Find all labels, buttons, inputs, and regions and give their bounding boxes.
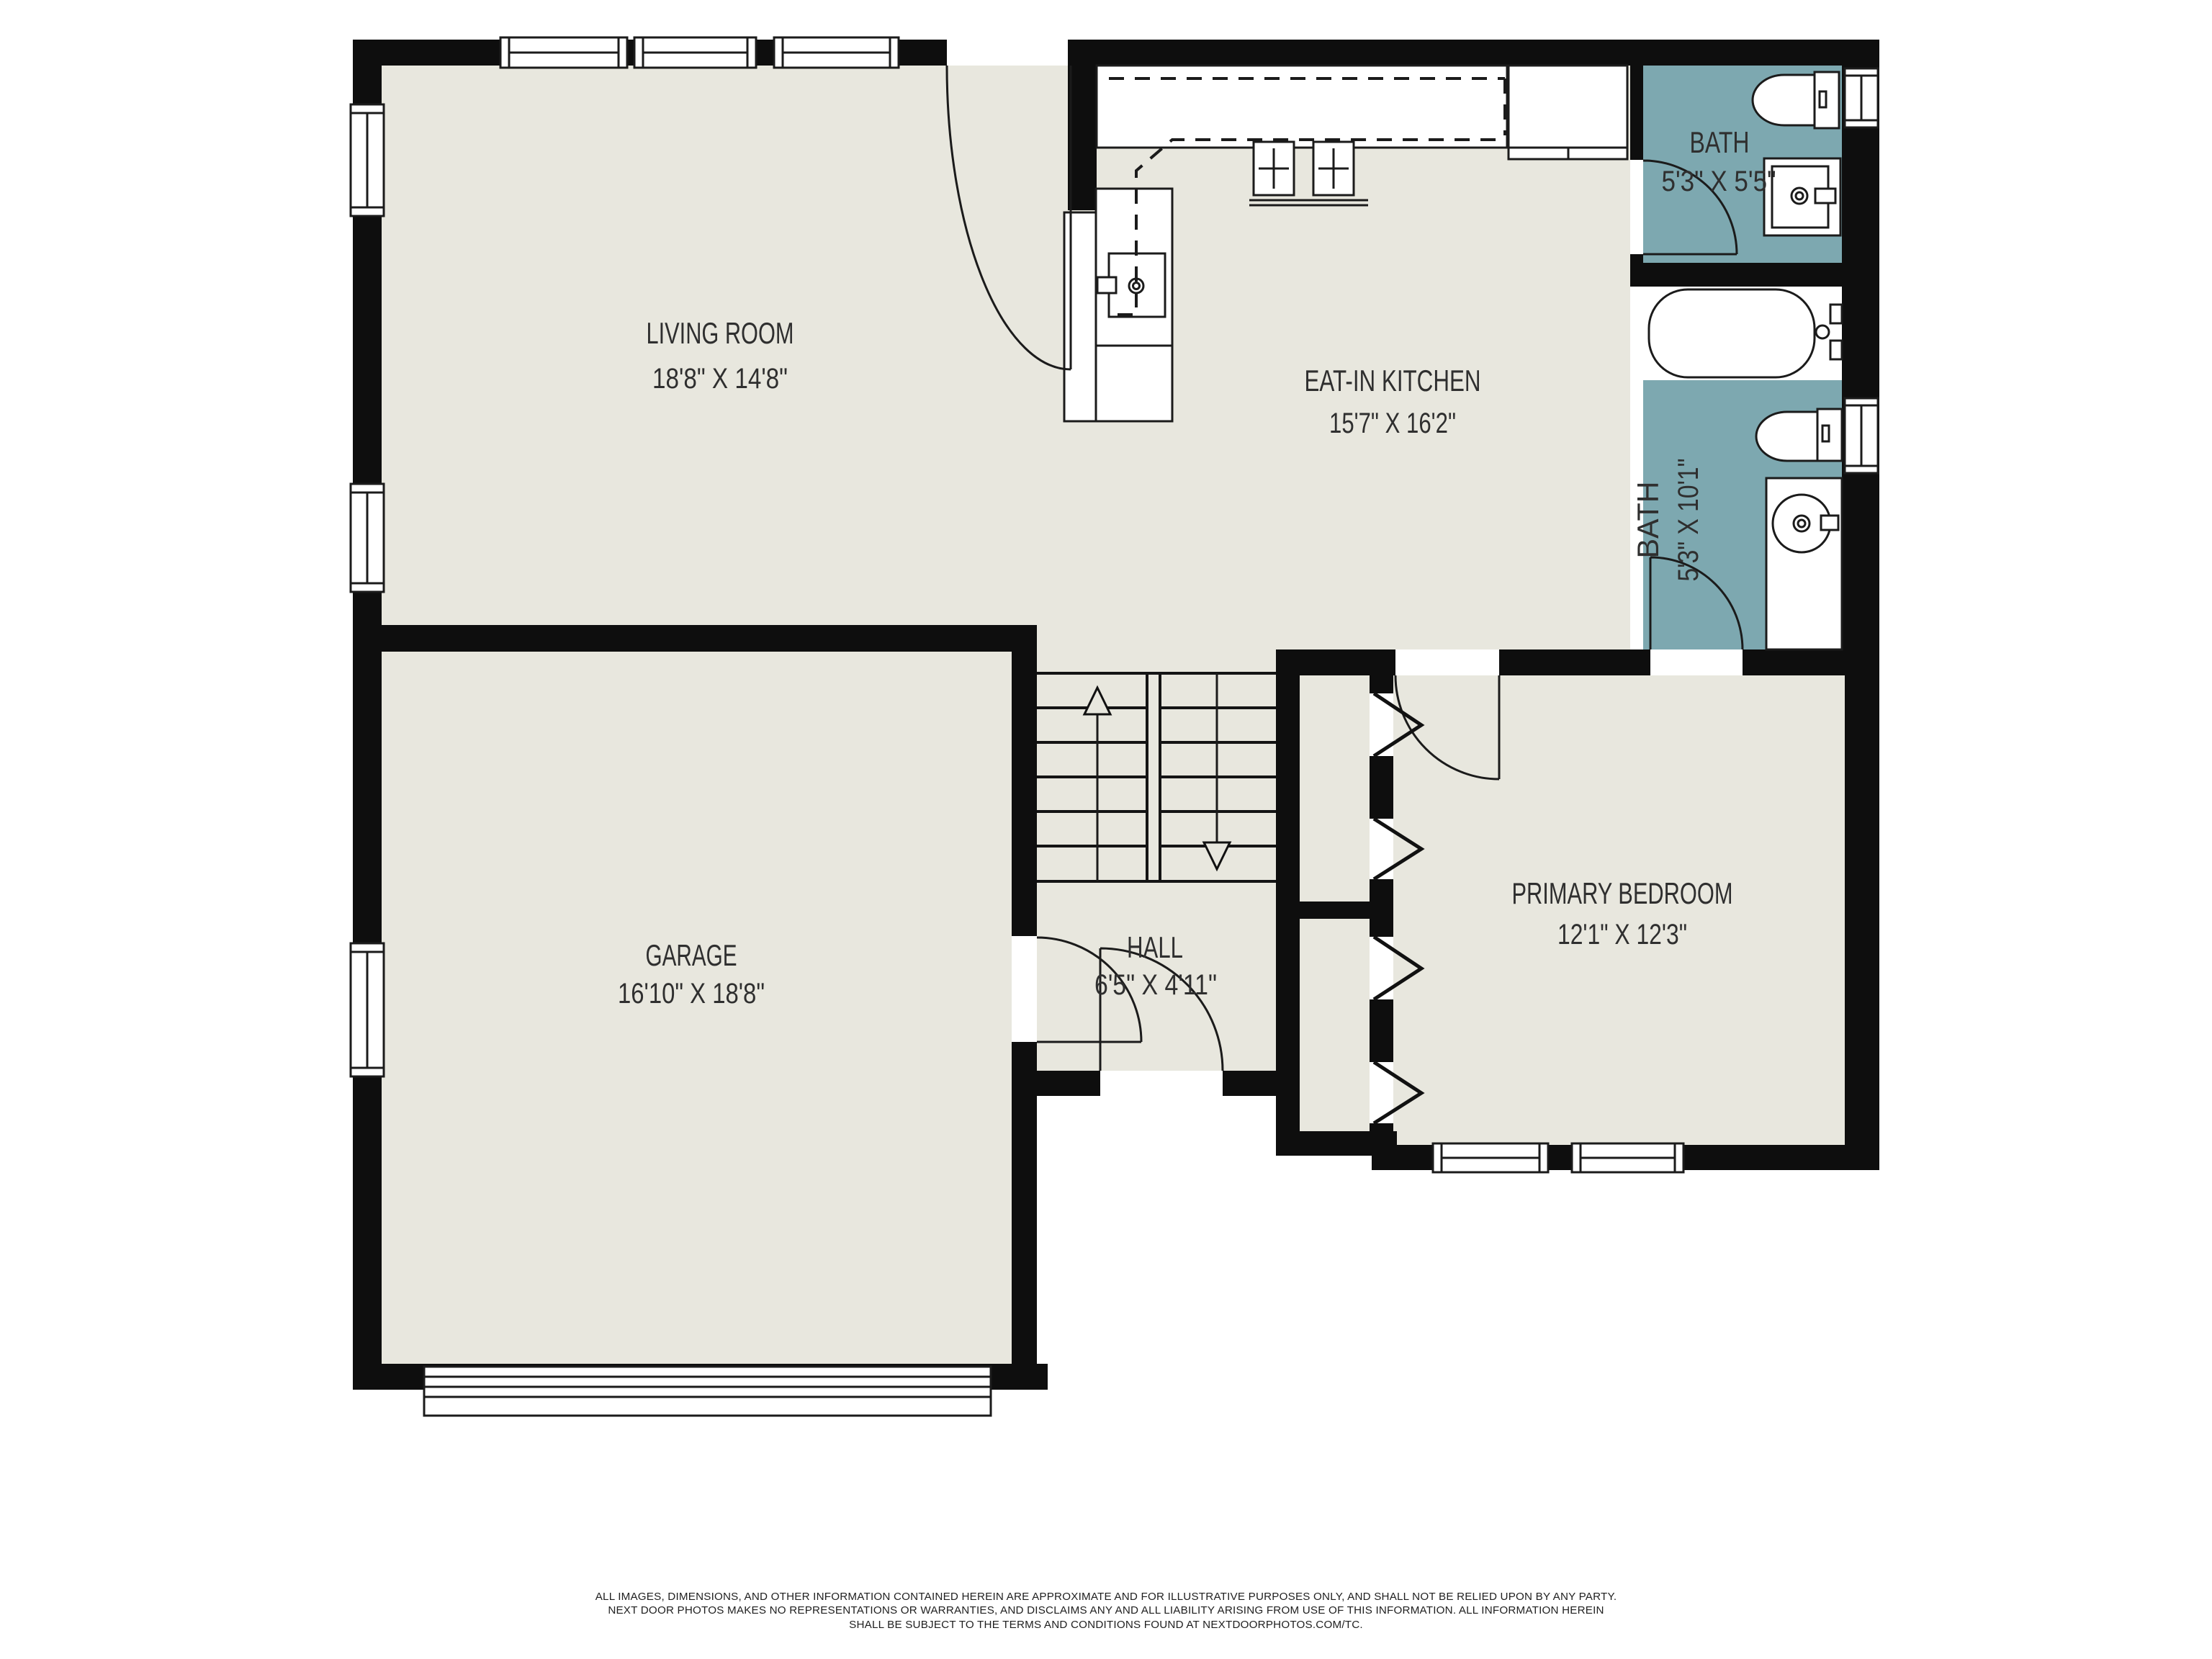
- front-door-opening: [1100, 1071, 1223, 1096]
- bath2-dims: 5'3" X 10'1": [1673, 459, 1704, 582]
- disclaimer-line: NEXT DOOR PHOTOS MAKES NO REPRESENTATION…: [0, 1604, 2212, 1617]
- living-kitchen-floor: [382, 66, 1630, 649]
- kitchen-label: EAT-IN KITCHEN: [1305, 364, 1481, 397]
- wall-bedroom-top: [1276, 649, 1879, 675]
- floor-plan-page: LIVING ROOM 18'8" X 14'8" EAT-IN KITCHEN…: [0, 0, 2212, 1659]
- refrigerator-icon: [1509, 66, 1627, 159]
- window-icon: [634, 37, 756, 68]
- bedroom-door-opening: [1395, 649, 1499, 675]
- disclaimer: ALL IMAGES, DIMENSIONS, AND OTHER INFORM…: [0, 1590, 2212, 1632]
- wall-bedroom-right: [1845, 670, 1879, 1170]
- toilet-icon: [1753, 72, 1839, 128]
- closet-top-floor: [1300, 675, 1370, 902]
- wall-living-garage: [353, 625, 1037, 652]
- garage-dims: 16'10" X 18'8": [618, 978, 765, 1010]
- kitchen-dims: 15'7" X 16'2": [1329, 408, 1456, 439]
- toilet-icon: [1756, 409, 1842, 461]
- bath1-label: BATH: [1690, 125, 1750, 159]
- sink-icon: [1766, 478, 1842, 649]
- bedroom-dims: 12'1" X 12'3": [1557, 919, 1687, 950]
- garage-label: GARAGE: [646, 938, 737, 972]
- kitchen-peninsula-counter: [1064, 212, 1096, 421]
- garage-door-icon: [424, 1367, 991, 1416]
- window-icon: [1845, 398, 1878, 473]
- entry-door-opening: [947, 40, 1068, 66]
- bath1-door-opening: [1630, 160, 1643, 254]
- closet-bottom-floor: [1300, 919, 1370, 1131]
- bedroom-floor: [1393, 675, 1845, 1145]
- disclaimer-line: SHALL BE SUBJECT TO THE TERMS AND CONDIT…: [0, 1618, 2212, 1632]
- window-icon: [1433, 1143, 1548, 1172]
- hall-label: HALL: [1127, 930, 1183, 964]
- wall-right-outer: [1842, 40, 1879, 649]
- bath2-door-opening: [1650, 649, 1743, 675]
- garage-hall-door-opening: [1012, 936, 1037, 1042]
- wall-closet-left: [1276, 660, 1300, 1156]
- window-icon: [351, 943, 384, 1076]
- floor-plan-svg: LIVING ROOM 18'8" X 14'8" EAT-IN KITCHEN…: [0, 0, 2212, 1659]
- window-icon: [500, 37, 627, 68]
- bath1-dims: 5'3" X 5'5": [1662, 166, 1776, 197]
- stair-hall-floor: [1037, 625, 1276, 1071]
- bath2-label: BATH: [1631, 482, 1665, 559]
- window-icon: [351, 104, 384, 216]
- disclaimer-line: ALL IMAGES, DIMENSIONS, AND OTHER INFORM…: [0, 1590, 2212, 1604]
- wall-left: [353, 40, 382, 1390]
- living-room-dims: 18'8" X 14'8": [652, 363, 788, 395]
- window-icon: [1845, 68, 1878, 127]
- window-icon: [351, 484, 384, 592]
- window-icon: [1572, 1143, 1683, 1172]
- wall-living-kitchen: [1068, 40, 1097, 210]
- wall-closet-divider: [1300, 902, 1370, 919]
- hall-dims: 6'5" X 4'11": [1094, 969, 1217, 1001]
- living-room-label: LIVING ROOM: [647, 316, 794, 350]
- bedroom-label: PRIMARY BEDROOM: [1512, 876, 1733, 910]
- window-icon: [774, 37, 899, 68]
